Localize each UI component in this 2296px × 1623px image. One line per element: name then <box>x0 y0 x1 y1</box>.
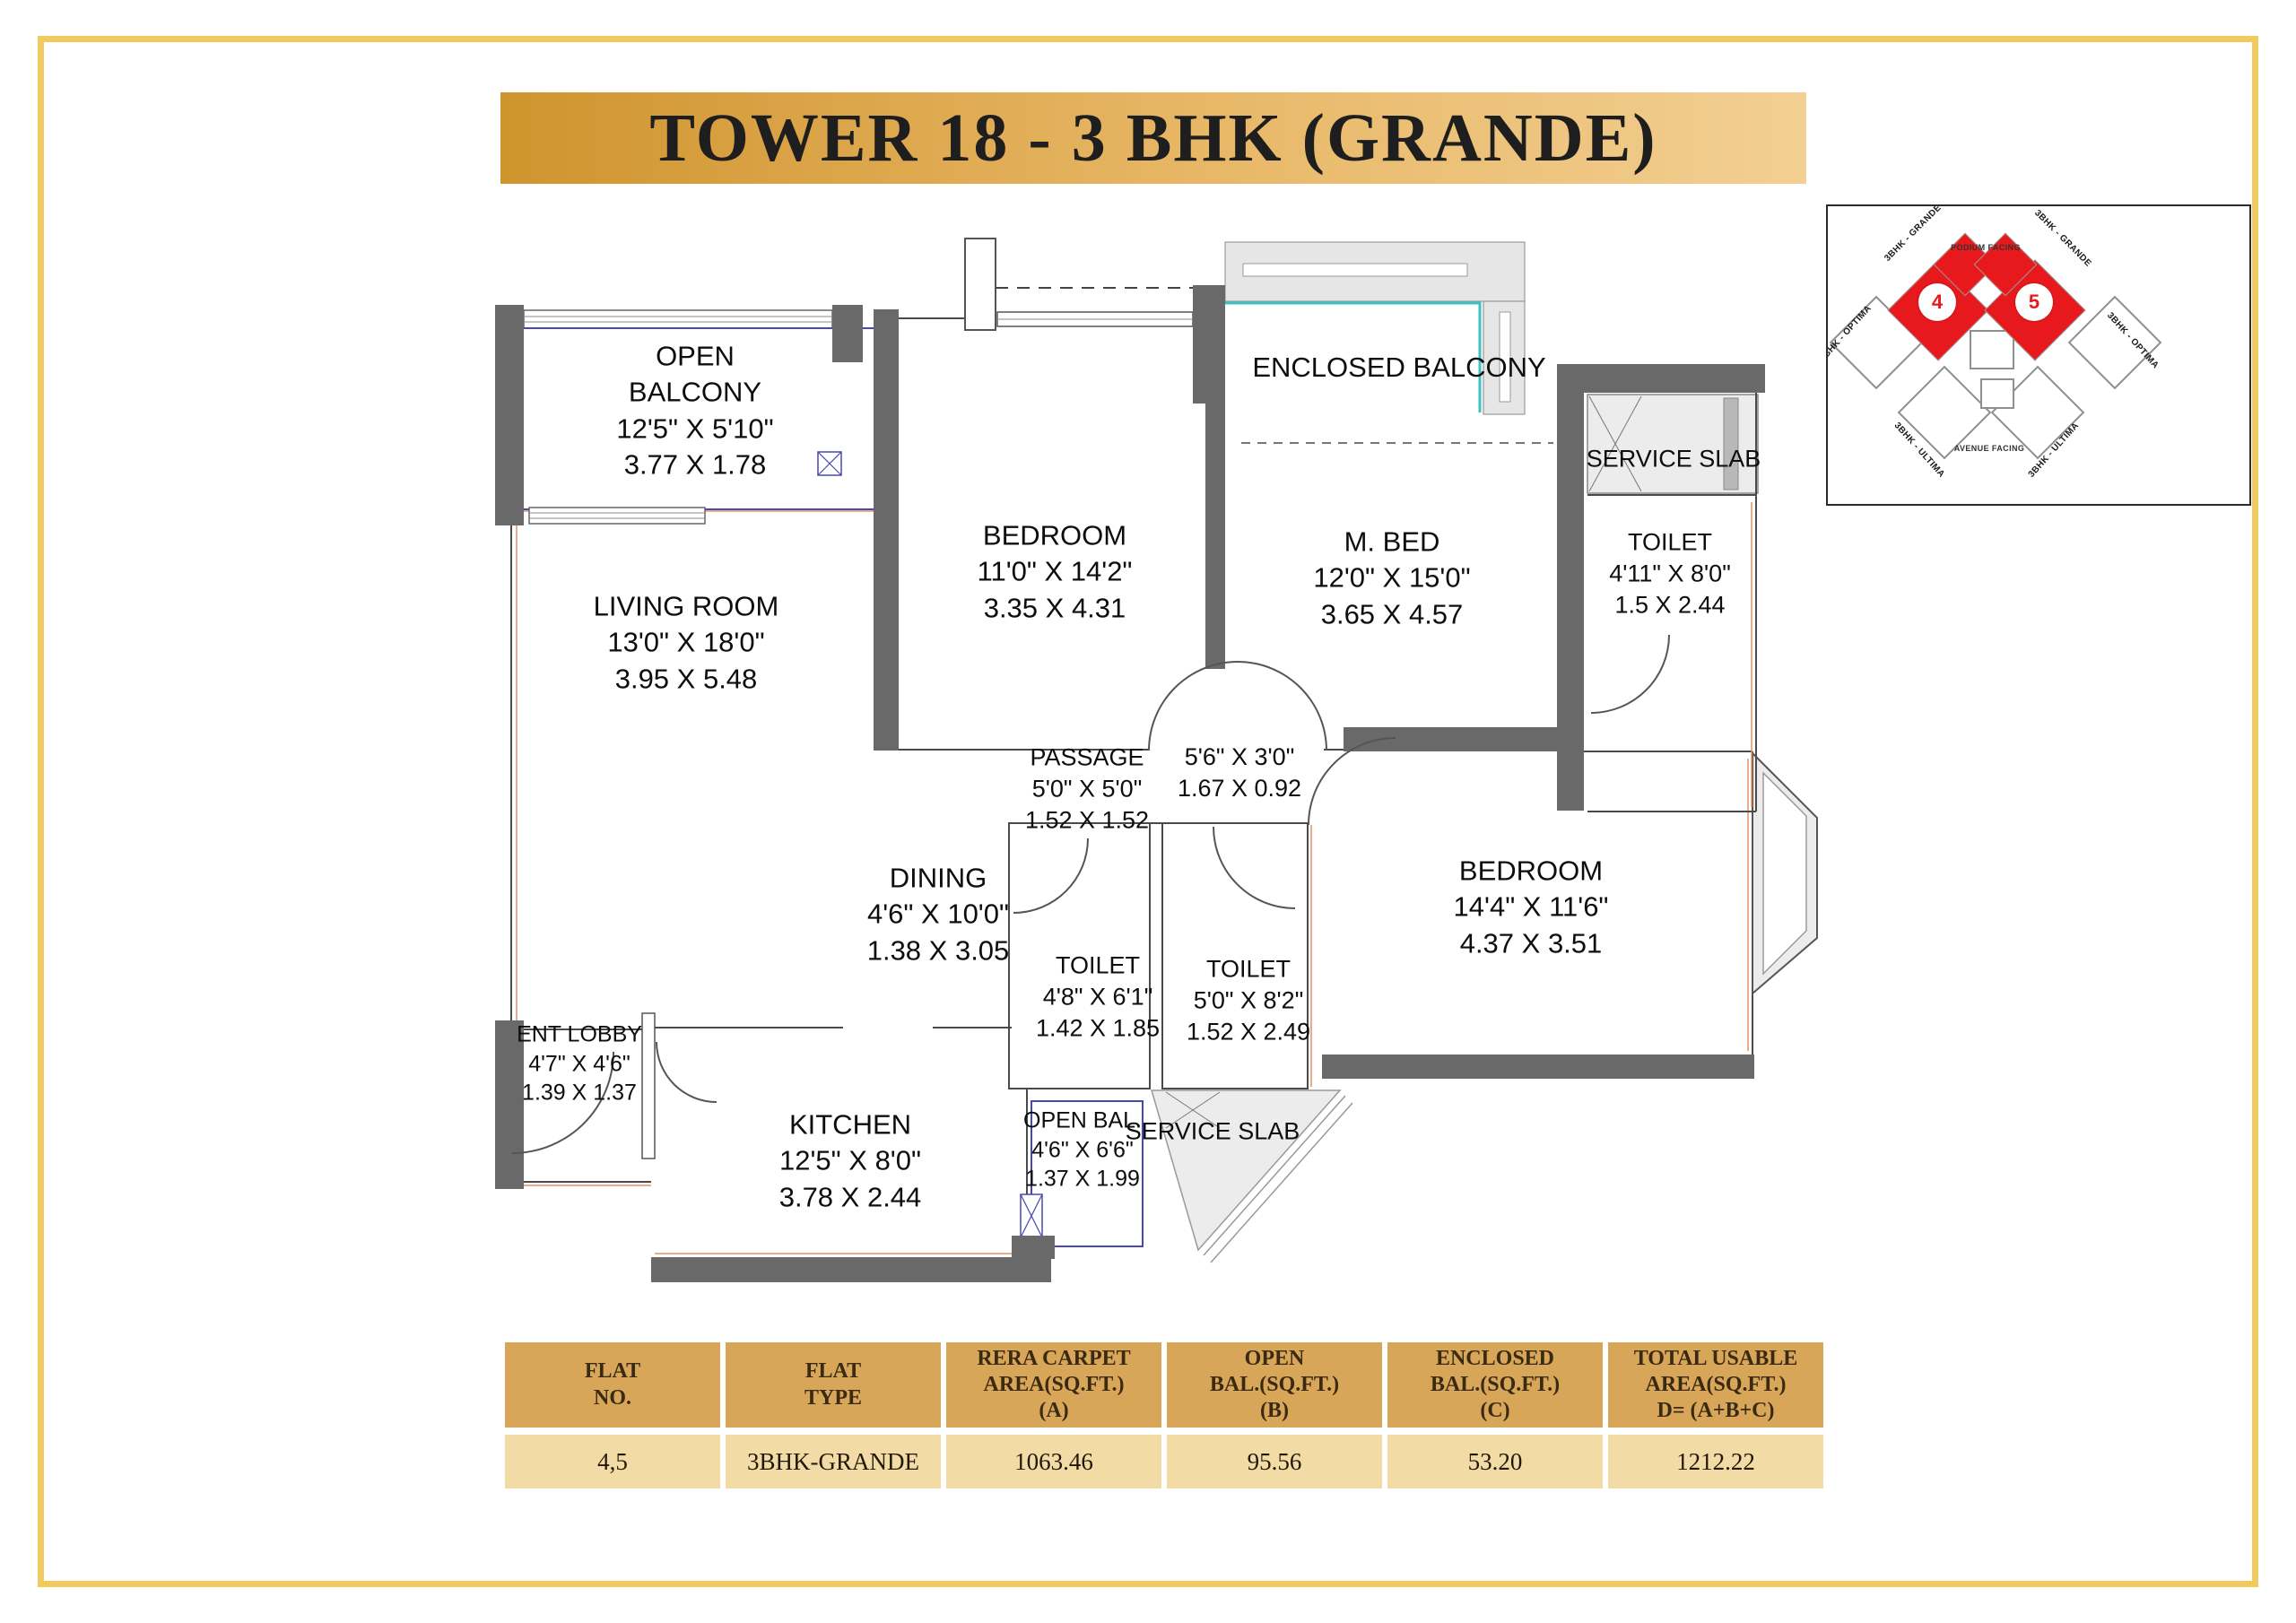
room-dims-metric: 1.37 X 1.99 <box>1023 1164 1142 1193</box>
room-name: TOILET <box>1187 953 1310 985</box>
room-name: ENCLOSED BALCONY <box>1252 350 1545 386</box>
wall <box>1012 1236 1055 1259</box>
header-line: AREA(SQ.FT.) <box>984 1372 1125 1398</box>
room-label-kitchen: KITCHEN 12'5" X 8'0" 3.78 X 2.44 <box>779 1107 922 1216</box>
room-dims-metric: 3.65 X 4.57 <box>1313 596 1470 632</box>
table-cell-rera-carpet: 1063.46 <box>946 1435 1161 1488</box>
room-label-enclosed-balcony: ENCLOSED BALCONY <box>1252 350 1545 386</box>
table-header-flat-no: FLAT NO. <box>505 1342 720 1428</box>
room-name: OPEN BALCONY <box>601 338 789 411</box>
room-dims-metric: 3.35 X 4.31 <box>978 590 1133 626</box>
wall <box>1205 404 1225 669</box>
header-line: ENCLOSED <box>1436 1346 1554 1372</box>
table-header-open-bal: OPEN BAL.(SQ.FT.) (B) <box>1167 1342 1382 1428</box>
header-line: (A) <box>1039 1398 1068 1424</box>
wall <box>1193 285 1225 404</box>
room-label-bedroom-right: BEDROOM 14'4" X 11'6" 4.37 X 3.51 <box>1454 854 1609 962</box>
room-name: TOILET <box>1036 950 1160 981</box>
room-dims-imperial: 13'0" X 18'0" <box>594 625 779 661</box>
wall <box>1322 1055 1754 1079</box>
table-cell-total-usable: 1212.22 <box>1608 1435 1823 1488</box>
keyplan-unit-number: 5 <box>2015 283 2053 321</box>
room-label-toilet-mid2: TOILET 5'0" X 8'2" 1.52 X 2.49 <box>1187 953 1310 1047</box>
room-dims-metric: 3.77 X 1.78 <box>601 447 789 482</box>
room-label-passage: PASSAGE 5'0" X 5'0" 1.52 X 1.52 <box>1025 742 1149 836</box>
room-dims-metric: 1.52 X 1.52 <box>1025 805 1149 837</box>
room-dims-imperial: 14'4" X 11'6" <box>1454 890 1609 925</box>
header-line: (C) <box>1480 1398 1509 1424</box>
room-dims-imperial: 5'6" X 3'0" <box>1178 742 1301 773</box>
room-name: SERVICE SLAB <box>1579 443 1768 474</box>
header-line: RERA CARPET <box>977 1346 1130 1372</box>
room-label-service-slab-top: SERVICE SLAB <box>1579 443 1768 474</box>
keyplan-unit-number: 4 <box>1918 283 1956 321</box>
room-dims-imperial: 4'7" X 4'6" <box>517 1049 642 1079</box>
keyplan-label: 3BHK - GRANDE <box>2032 208 2093 269</box>
room-name: DINING <box>867 861 1010 897</box>
room-label-passage-niche: 5'6" X 3'0" 1.67 X 0.92 <box>1178 742 1301 804</box>
header-line: TOTAL USABLE <box>1634 1346 1798 1372</box>
header-line: FLAT <box>805 1358 861 1384</box>
room-name: KITCHEN <box>779 1107 922 1143</box>
keyplan-core <box>1970 330 2014 369</box>
room-dims-metric: 1.38 X 3.05 <box>867 933 1010 968</box>
table-cell-open-bal: 95.56 <box>1167 1435 1382 1488</box>
room-dims-metric: 1.67 X 0.92 <box>1178 773 1301 804</box>
header-line: (B) <box>1260 1398 1289 1424</box>
header-line: BAL.(SQ.FT.) <box>1431 1372 1560 1398</box>
room-name: ENT LOBBY <box>517 1020 642 1049</box>
room-label-master-bed: M. BED 12'0" X 15'0" 3.65 X 4.57 <box>1313 525 1470 633</box>
room-label-ent-lobby: ENT LOBBY 4'7" X 4'6" 1.39 X 1.37 <box>517 1020 642 1107</box>
room-label-toilet-mid: TOILET 4'8" X 6'1" 1.42 X 1.85 <box>1036 950 1160 1044</box>
room-dims-imperial: 5'0" X 5'0" <box>1025 773 1149 804</box>
room-dims-metric: 1.5 X 2.44 <box>1609 590 1731 621</box>
table-cell-flat-type: 3BHK-GRANDE <box>726 1435 941 1488</box>
wall <box>495 305 524 525</box>
table-header-rera-carpet: RERA CARPET AREA(SQ.FT.) (A) <box>946 1342 1161 1428</box>
room-label-dining: DINING 4'6" X 10'0" 1.38 X 3.05 <box>867 861 1010 969</box>
room-label-living-room: LIVING ROOM 13'0" X 18'0" 3.95 X 5.48 <box>594 589 779 698</box>
room-label-open-balcony: OPEN BALCONY 12'5" X 5'10" 3.77 X 1.78 <box>601 338 789 482</box>
table-cell-flat-no: 4,5 <box>505 1435 720 1488</box>
room-dims-imperial: 4'6" X 10'0" <box>867 897 1010 933</box>
header-line: BAL.(SQ.FT.) <box>1210 1372 1339 1398</box>
room-dims-metric: 3.78 X 2.44 <box>779 1179 922 1215</box>
table-header-flat-type: FLAT TYPE <box>726 1342 941 1428</box>
floor-plan-page: TOWER 18 - 3 BHK (GRANDE) <box>0 0 2296 1623</box>
room-dims-metric: 1.39 X 1.37 <box>517 1078 642 1107</box>
keyplan-label: 3BHK - GRANDE <box>1883 204 1944 264</box>
room-label-service-slab-bottom: SERVICE SLAB <box>1118 1115 1307 1147</box>
room-dims-metric: 1.52 X 2.49 <box>1187 1017 1310 1048</box>
header-line: TYPE <box>804 1385 862 1411</box>
room-label-bedroom-top: BEDROOM 11'0" X 14'2" 3.35 X 4.31 <box>978 518 1133 627</box>
room-name: SERVICE SLAB <box>1118 1115 1307 1147</box>
wall <box>651 1257 1051 1282</box>
room-dims-imperial: 4'11" X 8'0" <box>1609 558 1731 589</box>
room-dims-metric: 4.37 X 3.51 <box>1454 925 1609 961</box>
room-name: LIVING ROOM <box>594 589 779 625</box>
room-name: BEDROOM <box>978 518 1133 554</box>
wall <box>832 305 863 362</box>
header-line: FLAT <box>585 1358 640 1384</box>
header-line: D= (A+B+C) <box>1657 1398 1774 1424</box>
room-name: BEDROOM <box>1454 854 1609 890</box>
room-name: TOILET <box>1609 526 1731 558</box>
room-dims-imperial: 12'0" X 15'0" <box>1313 560 1470 596</box>
room-label-toilet-top: TOILET 4'11" X 8'0" 1.5 X 2.44 <box>1609 526 1731 621</box>
header-line: NO. <box>594 1385 631 1411</box>
room-dims-metric: 1.42 X 1.85 <box>1036 1013 1160 1045</box>
wall <box>1557 364 1765 393</box>
room-dims-imperial: 12'5" X 5'10" <box>601 411 789 447</box>
room-dims-metric: 3.95 X 5.48 <box>594 661 779 697</box>
table-header-enclosed-bal: ENCLOSED BAL.(SQ.FT.) (C) <box>1387 1342 1603 1428</box>
room-name: M. BED <box>1313 525 1470 560</box>
keyplan-label: PODIUM FACING <box>1951 243 2021 252</box>
wall <box>874 309 899 751</box>
room-name: PASSAGE <box>1025 742 1149 773</box>
header-line: OPEN <box>1245 1346 1305 1372</box>
room-dims-imperial: 5'0" X 8'2" <box>1187 985 1310 1016</box>
room-dims-imperial: 4'8" X 6'1" <box>1036 981 1160 1012</box>
keyplan-core <box>1980 378 2014 409</box>
table-header-total-usable: TOTAL USABLE AREA(SQ.FT.) D= (A+B+C) <box>1608 1342 1823 1428</box>
table-cell-enclosed-bal: 53.20 <box>1387 1435 1603 1488</box>
room-dims-imperial: 12'5" X 8'0" <box>779 1143 922 1179</box>
header-line: AREA(SQ.FT.) <box>1646 1372 1787 1398</box>
key-plan: 4 5 3BHK - GRANDE PODIUM FACING 3BHK - G… <box>1826 204 2251 506</box>
keyplan-label: AVENUE FACING <box>1954 444 2025 453</box>
room-dims-imperial: 11'0" X 14'2" <box>978 554 1133 590</box>
